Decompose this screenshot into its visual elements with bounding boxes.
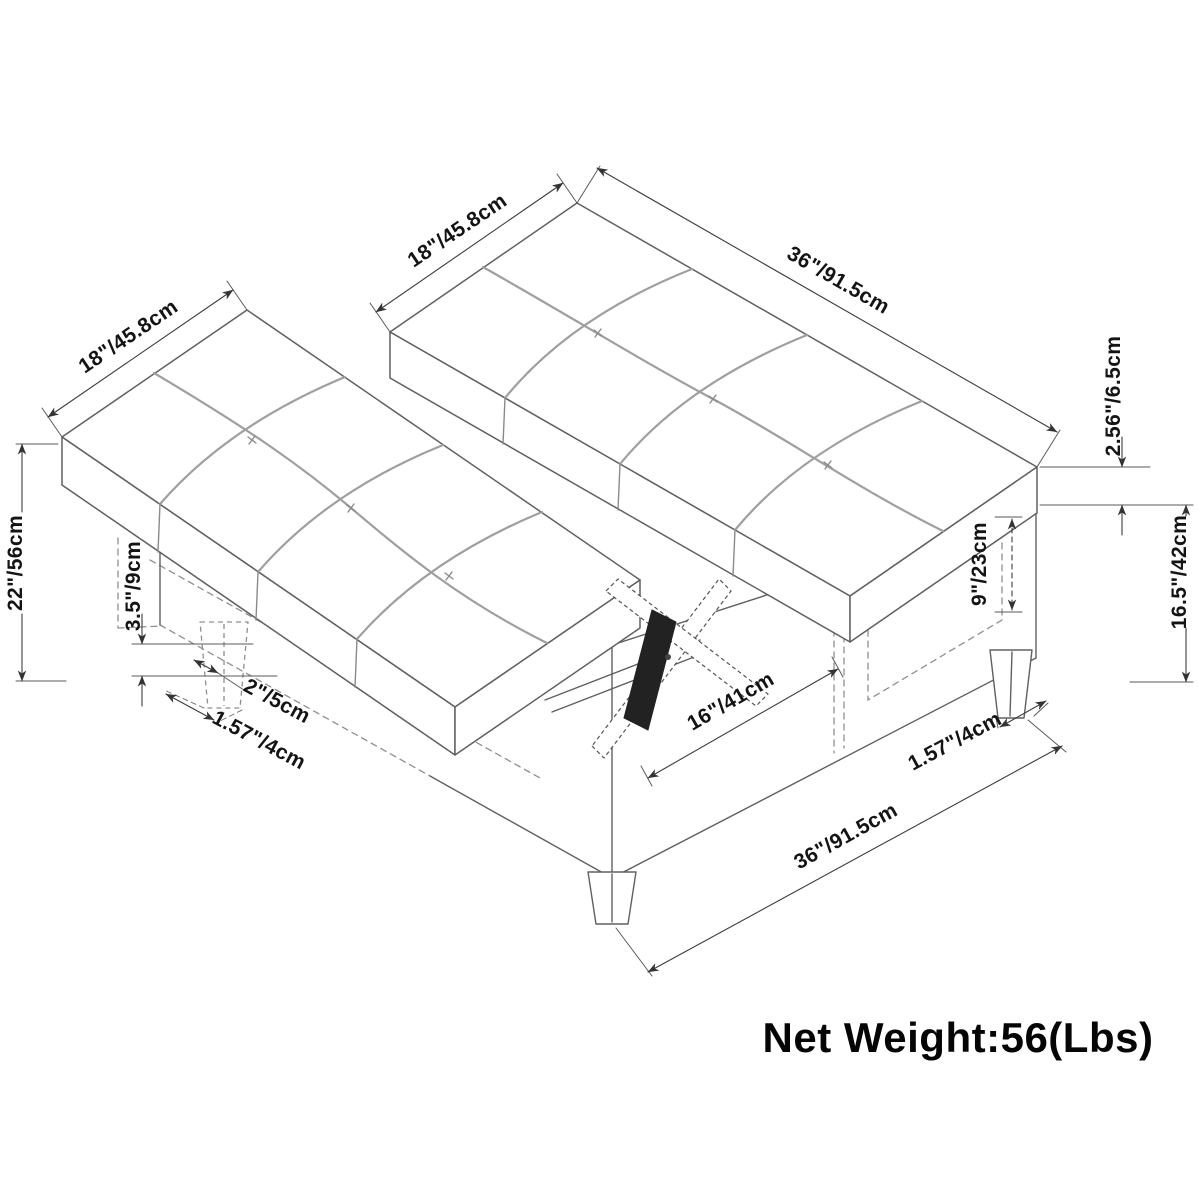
front-leg	[588, 872, 636, 924]
dimension-open-height: 22"/56cm	[4, 444, 66, 681]
right-leg	[990, 650, 1032, 718]
left-leg	[200, 622, 248, 708]
dim-label-cushion-length: 36"/91.5cm	[783, 242, 894, 319]
dim-label-cubby-height: 9"/23cm	[968, 522, 991, 606]
dim-label-leg-height: 3.5"/9cm	[122, 541, 145, 631]
dim-label-open-height: 22"/56cm	[4, 515, 27, 611]
dimension-base-height: 16.5"/42cm	[1130, 505, 1193, 682]
diagram-svg: 18"/45.8cm 18"/45.8cm 36"/91.5cm 2.56"/6…	[0, 0, 1200, 1200]
net-weight-label: Net Weight:56(Lbs)	[763, 1014, 1154, 1061]
ottoman-dimension-diagram: 18"/45.8cm 18"/45.8cm 36"/91.5cm 2.56"/6…	[0, 0, 1200, 1200]
dimension-cushion-thickness: 2.56"/6.5cm	[1040, 336, 1193, 535]
dim-label-base-height: 16.5"/42cm	[1168, 515, 1191, 629]
dimension-leg-bottom-width-right: 1.57"/4cm	[904, 701, 1048, 775]
dim-label-leg-top-width: 2"/5cm	[240, 674, 314, 728]
dim-label-base-length: 36"/91.5cm	[790, 799, 901, 875]
dim-label-cushion-thickness: 2.56"/6.5cm	[1102, 336, 1125, 457]
dim-label-leg-bottom-width-right: 1.57"/4cm	[904, 707, 1005, 775]
